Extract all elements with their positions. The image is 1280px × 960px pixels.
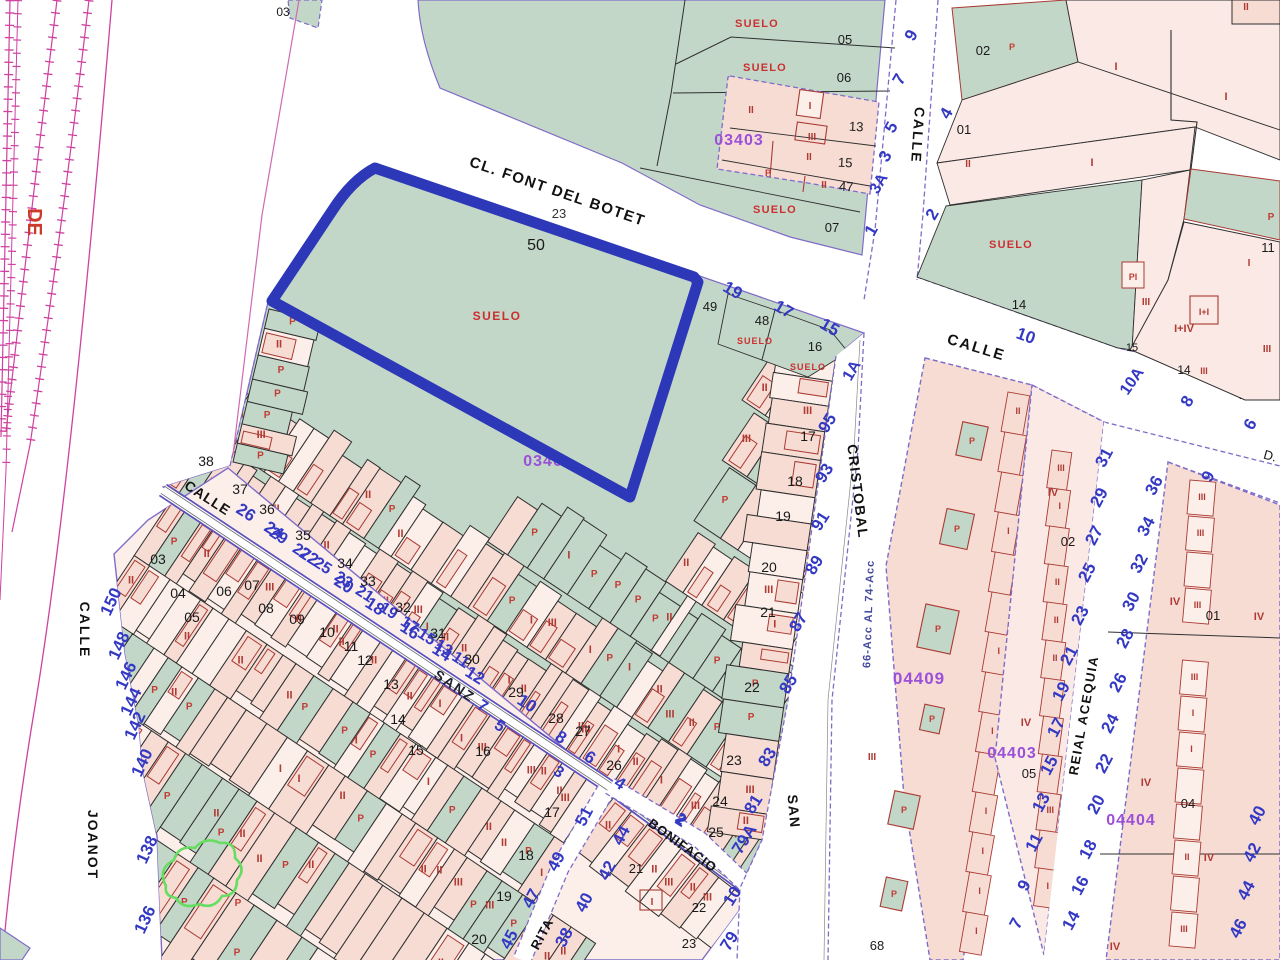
svg-text:P: P (235, 898, 242, 909)
svg-text:22: 22 (744, 679, 760, 695)
svg-text:04: 04 (1181, 796, 1195, 811)
svg-text:14: 14 (390, 711, 406, 727)
svg-text:I: I (567, 550, 570, 562)
svg-text:III: III (764, 584, 773, 596)
svg-text:21: 21 (760, 604, 776, 620)
svg-text:II: II (541, 766, 547, 778)
svg-text:P: P (218, 827, 225, 838)
svg-text:I: I (460, 733, 463, 745)
svg-text:I: I (978, 886, 981, 896)
svg-text:III: III (1263, 344, 1272, 355)
svg-text:19: 19 (496, 888, 512, 904)
svg-text:P: P (264, 410, 271, 421)
svg-text:P: P (901, 805, 907, 815)
svg-text:I: I (985, 806, 988, 816)
svg-text:48: 48 (755, 313, 769, 328)
svg-text:III: III (485, 900, 494, 912)
svg-text:II: II (238, 654, 244, 666)
svg-text:II: II (605, 819, 611, 831)
svg-text:II: II (1243, 2, 1249, 13)
svg-text:I: I (773, 619, 776, 631)
svg-text:II: II (240, 828, 246, 840)
svg-text:IV: IV (1170, 596, 1181, 608)
svg-text:35: 35 (295, 527, 311, 543)
svg-text:P: P (606, 653, 613, 664)
svg-text:P: P (151, 685, 158, 696)
svg-text:P: P (722, 495, 729, 506)
svg-text:P: P (929, 714, 935, 724)
svg-text:II: II (689, 717, 695, 729)
svg-text:04409: 04409 (893, 669, 945, 688)
svg-text:III: III (454, 876, 463, 888)
svg-text:12: 12 (357, 652, 373, 668)
svg-text:III: III (803, 405, 812, 417)
svg-text:20: 20 (761, 559, 777, 575)
svg-text:I: I (975, 926, 978, 936)
svg-text:07: 07 (244, 577, 260, 593)
svg-text:I: I (1047, 881, 1050, 891)
svg-text:33: 33 (360, 573, 376, 589)
svg-text:SUELO: SUELO (735, 18, 779, 30)
svg-text:II: II (1015, 406, 1020, 416)
svg-text:III: III (548, 617, 557, 629)
svg-text:16: 16 (808, 339, 822, 354)
svg-text:06: 06 (216, 583, 232, 599)
svg-text:02: 02 (976, 43, 990, 58)
svg-text:23: 23 (682, 936, 696, 951)
svg-text:23: 23 (552, 206, 566, 221)
svg-text:P: P (278, 365, 285, 376)
svg-text:37: 37 (232, 481, 248, 497)
svg-text:II: II (308, 859, 314, 871)
svg-text:29: 29 (508, 684, 524, 700)
svg-text:CALLE: CALLE (77, 602, 93, 659)
svg-text:P: P (1009, 42, 1015, 52)
svg-text:I: I (1192, 708, 1195, 718)
svg-text:50: 50 (527, 237, 545, 254)
svg-text:04: 04 (170, 585, 186, 601)
svg-text:I: I (651, 897, 654, 908)
svg-text:11: 11 (1261, 240, 1275, 255)
svg-text:I: I (809, 101, 812, 112)
svg-text:13: 13 (383, 676, 399, 692)
svg-text:P: P (171, 537, 178, 548)
svg-text:I: I (589, 644, 592, 656)
svg-text:03: 03 (150, 551, 166, 567)
svg-text:II: II (256, 853, 262, 865)
svg-text:I: I (628, 662, 631, 674)
svg-text:02: 02 (1061, 534, 1075, 549)
svg-text:II: II (683, 557, 689, 569)
svg-text:P: P (301, 702, 308, 713)
svg-text:II: II (276, 339, 282, 351)
svg-text:III: III (868, 752, 877, 763)
svg-text:P: P (234, 947, 241, 958)
svg-text:P: P (652, 613, 659, 624)
svg-text:SUELO: SUELO (790, 362, 826, 372)
svg-text:21: 21 (629, 861, 643, 876)
svg-text:DE: DE (23, 208, 45, 236)
svg-text:IV: IV (1110, 941, 1121, 953)
svg-text:I: I (991, 726, 994, 736)
svg-text:IV: IV (1141, 777, 1152, 789)
svg-text:III: III (1191, 672, 1199, 682)
svg-text:I+I: I+I (1199, 307, 1209, 317)
svg-text:24: 24 (712, 793, 728, 809)
svg-text:II: II (666, 612, 672, 624)
svg-text:49: 49 (703, 299, 717, 314)
svg-text:II: II (762, 382, 768, 394)
svg-text:II: II (965, 159, 971, 170)
svg-text:I: I (438, 698, 441, 710)
svg-text:P: P (186, 701, 193, 712)
svg-text:I: I (1090, 157, 1093, 169)
svg-text:P: P (257, 450, 264, 461)
svg-text:P: P (282, 860, 289, 871)
svg-text:17: 17 (800, 428, 816, 444)
svg-text:SUELO: SUELO (737, 336, 773, 346)
svg-text:II: II (407, 691, 413, 703)
svg-text:I: I (982, 846, 985, 856)
svg-text:I: I (1224, 91, 1227, 103)
svg-text:P: P (449, 805, 456, 816)
svg-text:II: II (690, 882, 696, 894)
svg-text:III: III (1197, 528, 1205, 538)
svg-text:JOANOT: JOANOT (85, 810, 101, 880)
svg-text:P: P (470, 899, 477, 910)
svg-text:03403: 03403 (714, 132, 764, 149)
svg-text:IV: IV (1254, 611, 1265, 623)
svg-text:26: 26 (606, 757, 622, 773)
svg-text:P: P (765, 168, 771, 178)
svg-text:II: II (286, 690, 292, 702)
svg-text:I: I (998, 646, 1001, 656)
svg-text:08: 08 (258, 600, 274, 616)
svg-text:06: 06 (837, 70, 851, 85)
svg-text:II: II (171, 686, 177, 698)
svg-text:II: II (436, 864, 442, 876)
svg-text:II: II (204, 548, 210, 560)
svg-text:P: P (591, 569, 598, 580)
svg-text:III: III (691, 800, 700, 812)
svg-text:P: P (615, 580, 622, 591)
svg-text:18: 18 (518, 847, 534, 863)
svg-text:I: I (298, 773, 301, 785)
svg-text:IV: IV (1204, 852, 1215, 864)
svg-text:P: P (531, 528, 538, 539)
svg-text:II: II (486, 821, 492, 833)
svg-text:P: P (389, 504, 396, 515)
svg-text:P: P (935, 624, 941, 634)
svg-text:II: II (748, 105, 754, 116)
svg-text:I: I (1190, 744, 1193, 754)
svg-text:III: III (257, 429, 266, 441)
svg-text:I: I (1248, 258, 1251, 269)
svg-text:68: 68 (870, 938, 884, 953)
svg-text:14: 14 (1012, 297, 1026, 312)
svg-text:20: 20 (471, 931, 487, 947)
svg-text:P: P (891, 889, 897, 899)
svg-text:07: 07 (825, 220, 839, 235)
svg-text:I: I (530, 615, 533, 627)
svg-text:04403: 04403 (987, 745, 1037, 762)
svg-text:P: P (969, 436, 975, 446)
svg-text:30: 30 (464, 651, 480, 667)
svg-text:10: 10 (319, 624, 335, 640)
svg-text:23: 23 (726, 752, 742, 768)
svg-text:II: II (421, 863, 427, 875)
svg-text:SUELO: SUELO (743, 62, 787, 74)
svg-text:II: II (1055, 577, 1060, 587)
svg-text:III: III (414, 604, 423, 616)
svg-text:III: III (808, 132, 817, 143)
svg-text:22: 22 (692, 900, 706, 915)
svg-text:04404: 04404 (1106, 812, 1156, 829)
svg-text:I: I (617, 743, 620, 755)
svg-text:15: 15 (1126, 342, 1138, 354)
svg-text:14: 14 (1177, 363, 1191, 377)
svg-text:P: P (341, 725, 348, 736)
svg-text:IV: IV (1048, 487, 1059, 499)
svg-text:II: II (128, 574, 134, 586)
svg-text:I: I (1114, 61, 1117, 73)
svg-text:03: 03 (276, 5, 290, 19)
svg-text:P: P (357, 813, 364, 824)
svg-text:P: P (635, 595, 642, 606)
svg-text:18: 18 (787, 473, 803, 489)
svg-text:05: 05 (838, 32, 852, 47)
svg-text:P: P (748, 712, 755, 723)
svg-text:II: II (544, 951, 550, 960)
svg-text:I: I (1007, 526, 1010, 536)
svg-text:P: P (164, 791, 171, 802)
svg-text:31: 31 (430, 625, 446, 641)
svg-text:III: III (1200, 366, 1208, 376)
svg-text:47: 47 (839, 179, 854, 195)
svg-text:II: II (213, 808, 219, 820)
svg-text:SUELO: SUELO (753, 204, 797, 216)
svg-text:05: 05 (1022, 766, 1036, 781)
svg-text:II: II (184, 630, 190, 642)
svg-text:III: III (1198, 492, 1206, 502)
svg-text:16: 16 (475, 743, 491, 759)
svg-text:I: I (427, 776, 430, 788)
svg-text:SUELO: SUELO (989, 239, 1033, 251)
svg-text:I: I (279, 763, 282, 775)
svg-text:P: P (509, 596, 516, 607)
svg-text:II: II (1184, 852, 1189, 862)
svg-text:III: III (1194, 600, 1202, 610)
svg-text:II: II (397, 528, 403, 540)
svg-text:13: 13 (849, 119, 864, 135)
svg-text:III: III (1057, 463, 1065, 473)
svg-text:01: 01 (1206, 608, 1220, 623)
svg-text:IV: IV (1021, 717, 1032, 729)
svg-text:II: II (340, 790, 346, 802)
svg-text:II: II (651, 863, 657, 875)
svg-text:34: 34 (337, 555, 353, 571)
svg-text:P: P (954, 524, 960, 534)
svg-text:17: 17 (544, 804, 560, 820)
svg-text:III: III (742, 433, 751, 445)
svg-text:III: III (1180, 924, 1188, 934)
svg-text:I: I (540, 867, 543, 879)
svg-text:III: III (265, 581, 274, 593)
svg-text:II: II (501, 837, 507, 849)
svg-text:I: I (660, 775, 663, 787)
svg-text:III: III (665, 709, 674, 721)
svg-text:II: II (365, 489, 371, 501)
svg-text:PI: PI (1129, 272, 1138, 282)
svg-text:II: II (821, 180, 827, 191)
svg-text:38: 38 (198, 453, 214, 469)
svg-text:SUELO: SUELO (473, 309, 522, 323)
svg-text:P: P (714, 655, 721, 666)
svg-text:P: P (1268, 212, 1275, 223)
svg-text:P: P (370, 749, 377, 760)
svg-text:III: III (1142, 297, 1151, 308)
svg-text:III: III (561, 792, 570, 804)
svg-text:36: 36 (259, 501, 275, 517)
svg-text:III: III (664, 876, 673, 888)
svg-text:15: 15 (838, 155, 853, 171)
svg-text:27: 27 (575, 723, 591, 739)
svg-text:15: 15 (408, 742, 424, 758)
svg-text:II: II (633, 756, 639, 768)
svg-text:09: 09 (289, 611, 305, 627)
svg-text:19: 19 (775, 508, 791, 524)
svg-text:01: 01 (957, 122, 971, 137)
svg-text:P: P (510, 918, 517, 929)
svg-text:32: 32 (395, 599, 411, 615)
svg-text:SAN: SAN (785, 794, 804, 829)
svg-text:I: I (355, 735, 358, 747)
svg-text:I+IV: I+IV (1174, 323, 1195, 335)
svg-text:II: II (657, 684, 663, 696)
svg-text:28: 28 (548, 710, 564, 726)
svg-text:II: II (1054, 615, 1059, 625)
svg-text:P: P (274, 389, 281, 400)
svg-text:I: I (1059, 501, 1062, 511)
svg-text:II: II (806, 152, 812, 163)
svg-text:05: 05 (184, 609, 200, 625)
